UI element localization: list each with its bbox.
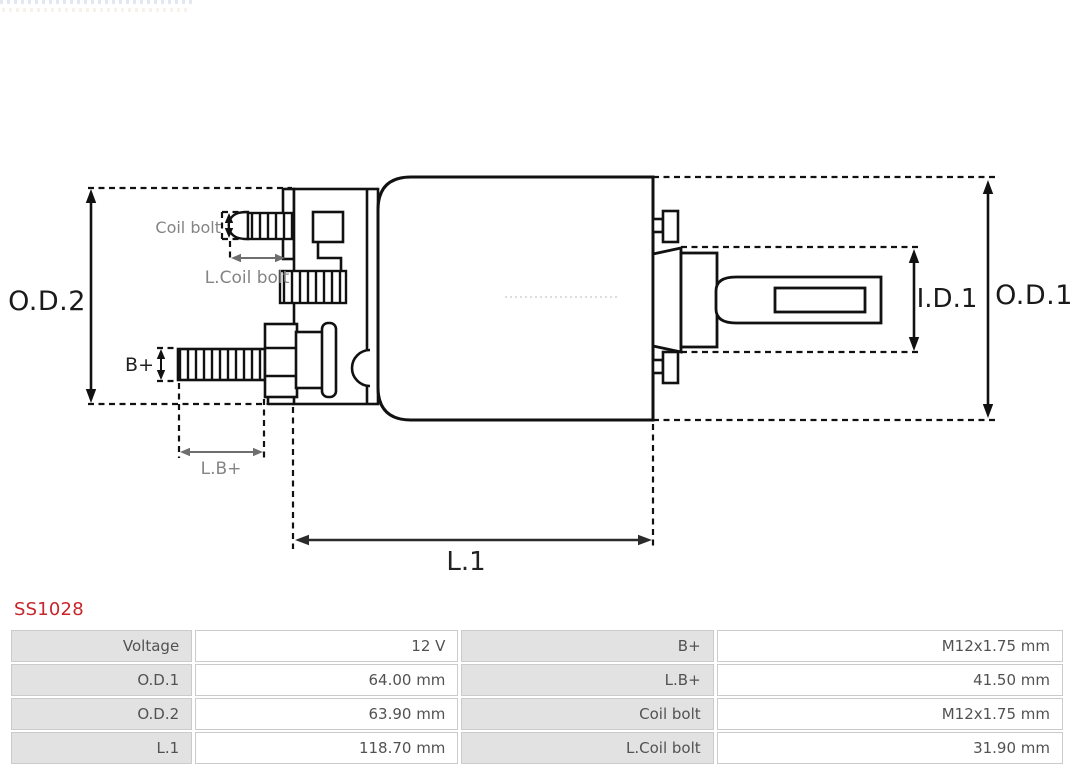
spec-row: L.1 118.70 mm L.Coil bolt 31.90 mm xyxy=(11,732,1063,764)
product-spec-page: { "product": { "code": "SS1028", "code_c… xyxy=(0,0,1080,767)
spec-value-cell: 64.00 mm xyxy=(195,664,458,696)
l-coil-bolt-arrow xyxy=(231,254,285,262)
solenoid-dimension-diagram: O.D.2 Coil bolt L.Coil bolt B+ L.B+ L.1 … xyxy=(0,0,1080,594)
spec-value-cell: M12x1.75 mm xyxy=(717,698,1063,730)
spec-label-cell: Voltage xyxy=(11,630,192,662)
b-plus-arrow xyxy=(157,349,165,380)
od1-arrow xyxy=(983,180,993,418)
l-b-plus-arrow xyxy=(180,448,263,456)
coil-bolt-label: Coil bolt xyxy=(155,218,221,237)
spec-label-cell: O.D.2 xyxy=(11,698,192,730)
id1-label: I.D.1 xyxy=(917,284,978,314)
spec-value-cell: M12x1.75 mm xyxy=(717,630,1063,662)
plunger-shaft xyxy=(653,248,881,352)
b-plus-label: B+ xyxy=(125,354,154,376)
spec-table: Voltage 12 V B+ M12x1.75 mm O.D.1 64.00 … xyxy=(8,628,1066,766)
spec-label-cell: O.D.1 xyxy=(11,664,192,696)
b-plus-bolt-shape xyxy=(178,323,336,397)
l-coil-bolt-label: L.Coil bolt xyxy=(205,268,290,288)
spec-label-cell: Coil bolt xyxy=(461,698,713,730)
l1-label: L.1 xyxy=(446,547,485,577)
od1-label: O.D.1 xyxy=(995,280,1073,311)
spec-label-cell: L.B+ xyxy=(461,664,713,696)
spec-value-cell: 12 V xyxy=(195,630,458,662)
od2-label: O.D.2 xyxy=(8,286,86,317)
spec-label-cell: L.1 xyxy=(11,732,192,764)
product-code: SS1028 xyxy=(14,599,84,621)
solenoid-body xyxy=(378,177,653,420)
l1-arrow xyxy=(295,535,652,545)
spec-row: Voltage 12 V B+ M12x1.75 mm xyxy=(11,630,1063,662)
spec-value-cell: 31.90 mm xyxy=(717,732,1063,764)
l-b-plus-label: L.B+ xyxy=(201,459,242,479)
spec-value-cell: 118.70 mm xyxy=(195,732,458,764)
spec-row: O.D.1 64.00 mm L.B+ 41.50 mm xyxy=(11,664,1063,696)
spec-row: O.D.2 63.90 mm Coil bolt M12x1.75 mm xyxy=(11,698,1063,730)
spec-label-cell: B+ xyxy=(461,630,713,662)
spec-label-cell: L.Coil bolt xyxy=(461,732,713,764)
od2-arrow xyxy=(86,189,96,403)
spec-value-cell: 41.50 mm xyxy=(717,664,1063,696)
spec-value-cell: 63.90 mm xyxy=(195,698,458,730)
